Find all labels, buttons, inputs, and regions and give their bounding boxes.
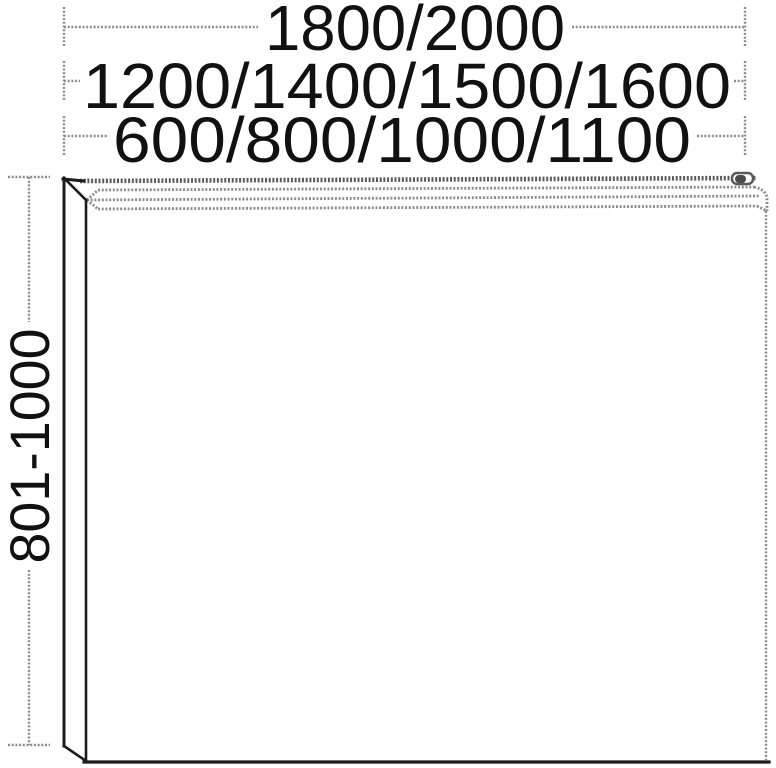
light-strip-bottom-line xyxy=(98,206,757,209)
light-strip-middle-line xyxy=(87,196,760,200)
light-strip-top-line xyxy=(98,187,754,190)
mirror-body xyxy=(63,178,769,762)
mirror-left-bevel-bottom xyxy=(64,746,86,761)
sensor-tab-dot-icon xyxy=(735,175,746,183)
light-strip-back-edge xyxy=(80,178,757,181)
dimension-width-bottom: 600/800/1000/1100 xyxy=(64,104,745,176)
dimension-height-left: 801-1000 xyxy=(0,177,61,745)
mirror-front-face xyxy=(88,212,764,760)
led-light-strip xyxy=(80,173,767,211)
dim-label-height-left: 801-1000 xyxy=(0,329,61,564)
technical-drawing-canvas: 1800/2000 1200/1400/1500/1600 600/800/10… xyxy=(0,0,776,768)
light-strip-left-cap-top xyxy=(87,190,98,200)
light-strip-right-cap-bottom xyxy=(757,206,767,211)
mirror-dimension-drawing: 1800/2000 1200/1400/1500/1600 600/800/10… xyxy=(0,0,776,768)
dim-label-width-bottom: 600/800/1000/1100 xyxy=(113,104,691,176)
